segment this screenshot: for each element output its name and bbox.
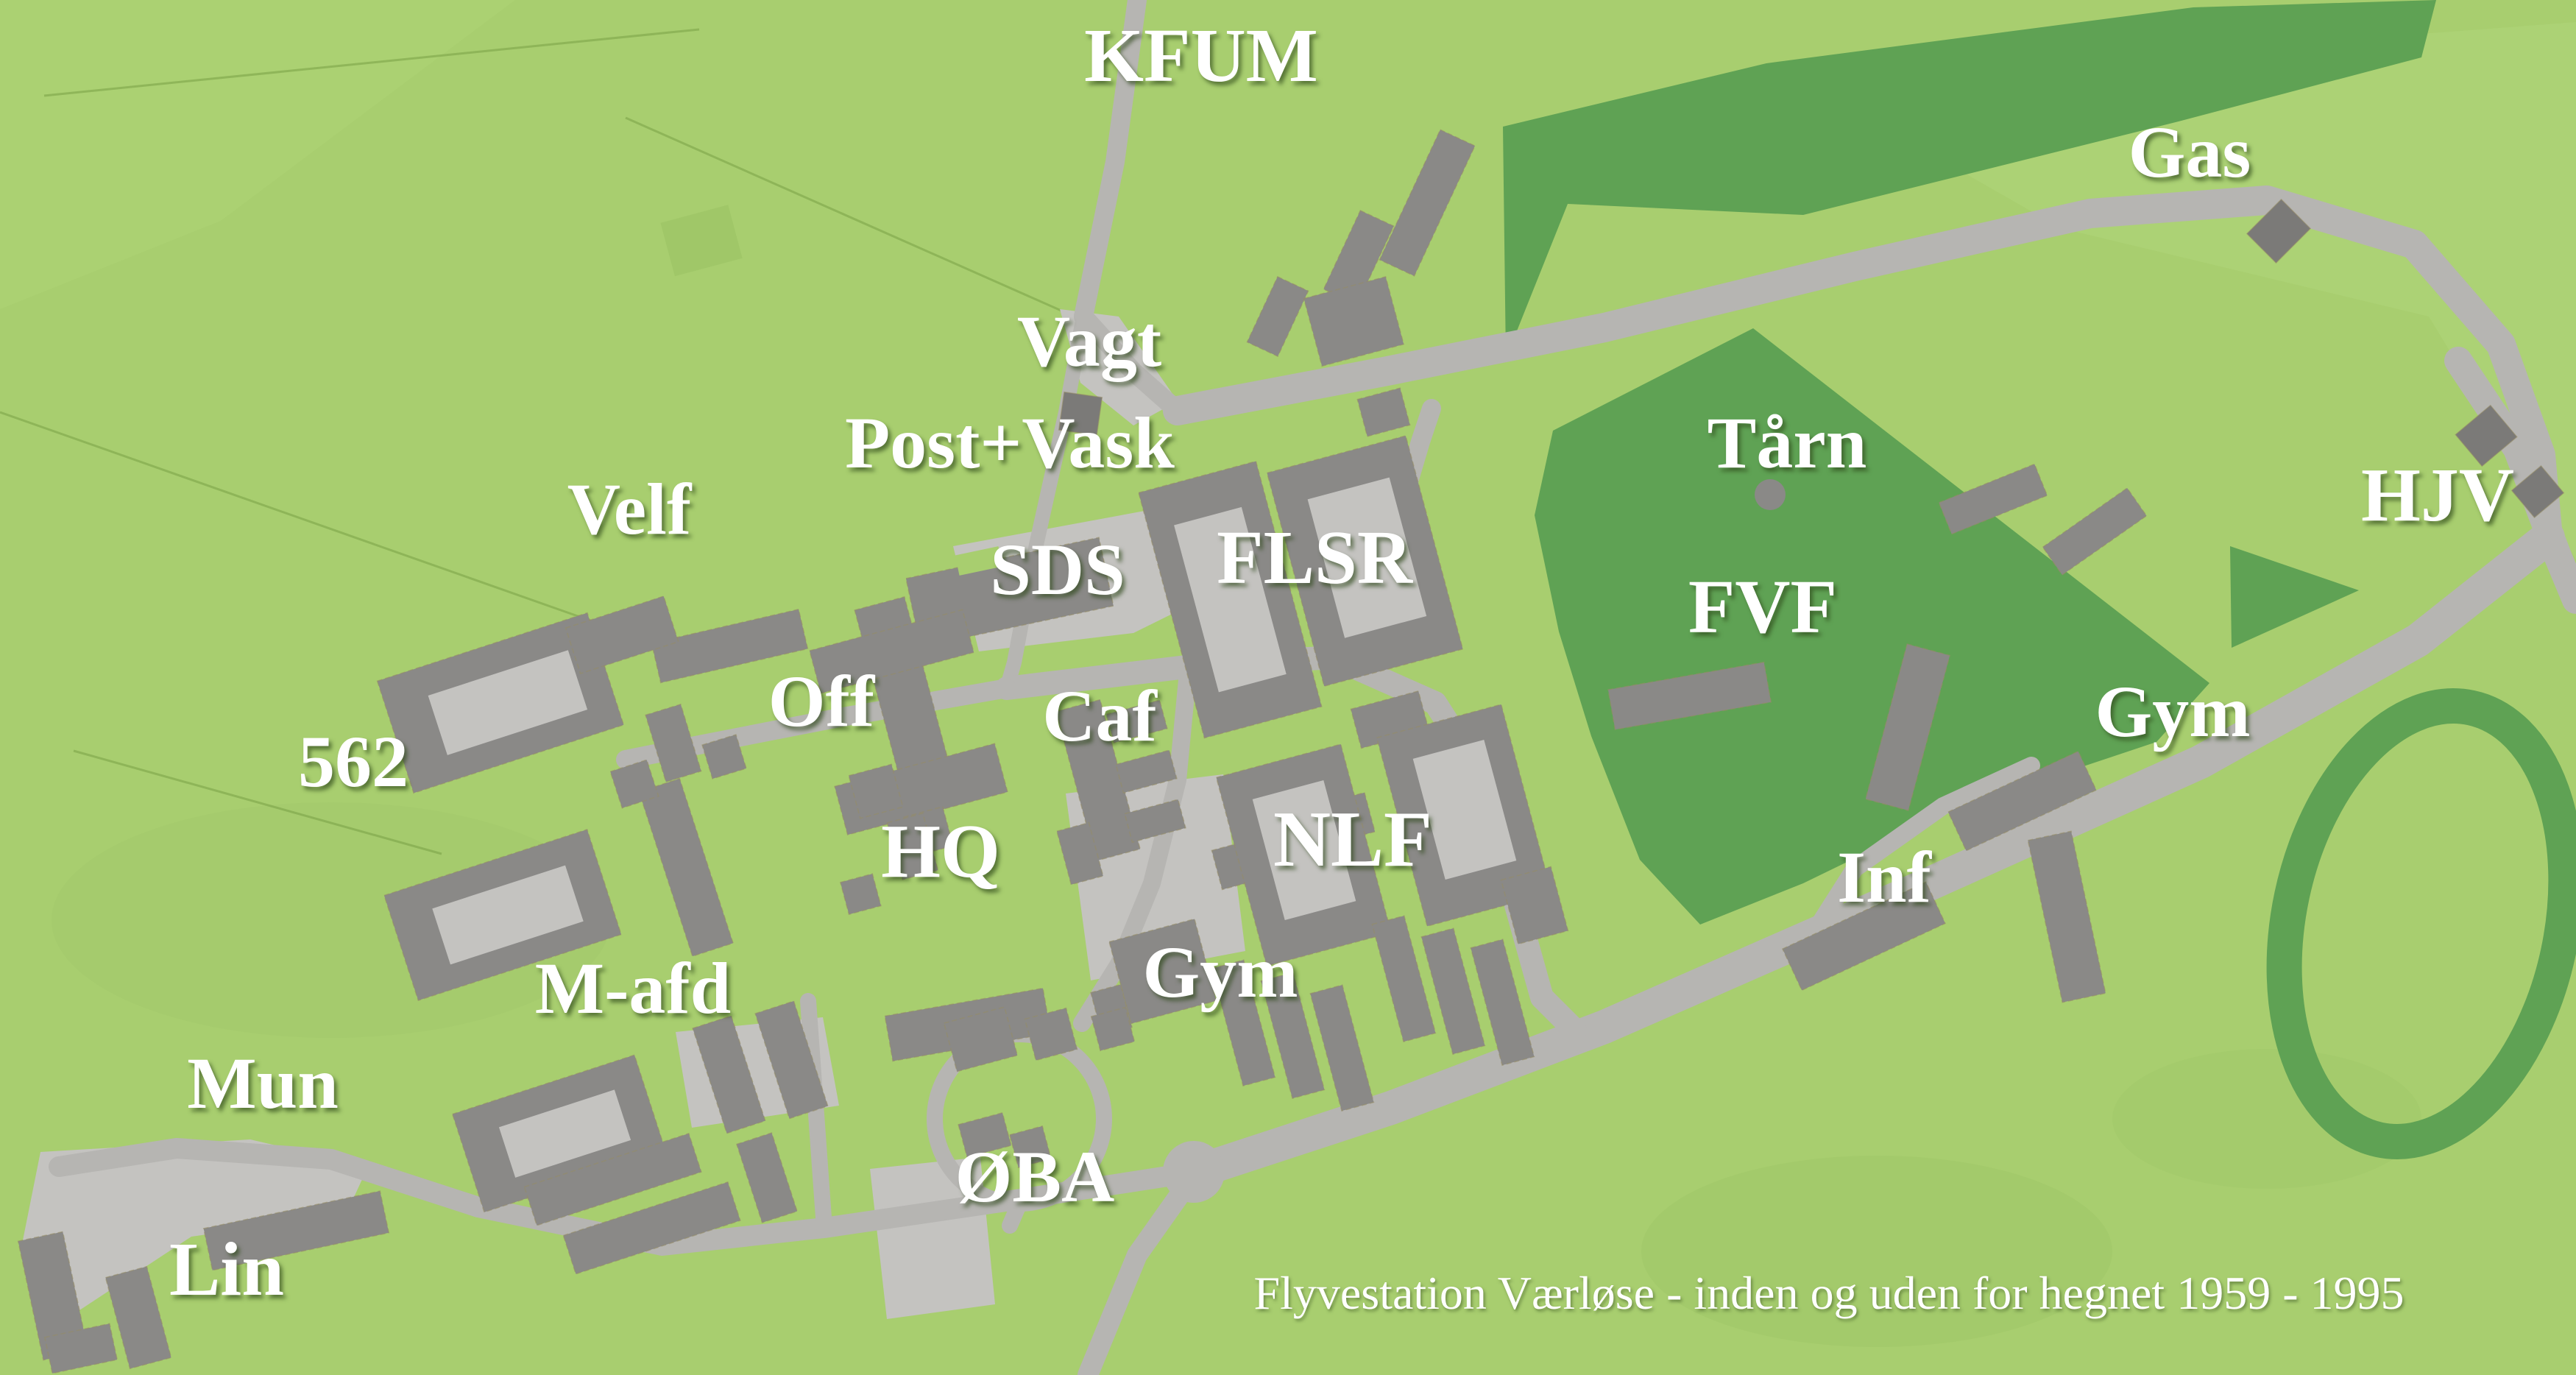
map-label-hjv: HJV: [2361, 453, 2514, 537]
map-label-velf: Velf: [567, 468, 693, 550]
map-label-fvf: FVF: [1688, 565, 1837, 649]
tower-marker: [1755, 479, 1786, 510]
map-label-gas: Gas: [2129, 111, 2251, 193]
map-label-lin: Lin: [169, 1227, 284, 1312]
map-label-off: Off: [768, 660, 876, 742]
map-label-oeba: ØBA: [955, 1136, 1115, 1217]
map-label-m-afd: M-afd: [535, 947, 732, 1029]
map-label-b562: 562: [298, 721, 408, 802]
map-label-post-vask: Post+Vask: [845, 402, 1175, 484]
map-label-hq: HQ: [881, 809, 1000, 894]
map-label-inf: Inf: [1837, 836, 1933, 918]
map-label-kfum: KFUM: [1084, 13, 1318, 98]
map-label-sds: SDS: [990, 529, 1125, 610]
map-label-flsr: FLSR: [1217, 515, 1414, 600]
map-label-gym-center: Gym: [1142, 931, 1298, 1013]
map-label-nlf: NLF: [1273, 796, 1432, 883]
map-label-vagt: Vagt: [1017, 300, 1161, 382]
map-label-taarn: Tårn: [1708, 402, 1867, 484]
map-canvas[interactable]: KFUMGasVagtPost+VaskVelfSDSFLSRTårnHJVOf…: [0, 0, 2576, 1375]
map-label-mun: Mun: [187, 1042, 339, 1124]
map-label-caf: Caf: [1042, 675, 1158, 757]
base-map-svg: KFUMGasVagtPost+VaskVelfSDSFLSRTårnHJVOf…: [0, 0, 2576, 1375]
map-label-gym-east: Gym: [2095, 671, 2250, 752]
map-label-caption: Flyvestation Værløse - inden og uden for…: [1253, 1267, 2404, 1319]
